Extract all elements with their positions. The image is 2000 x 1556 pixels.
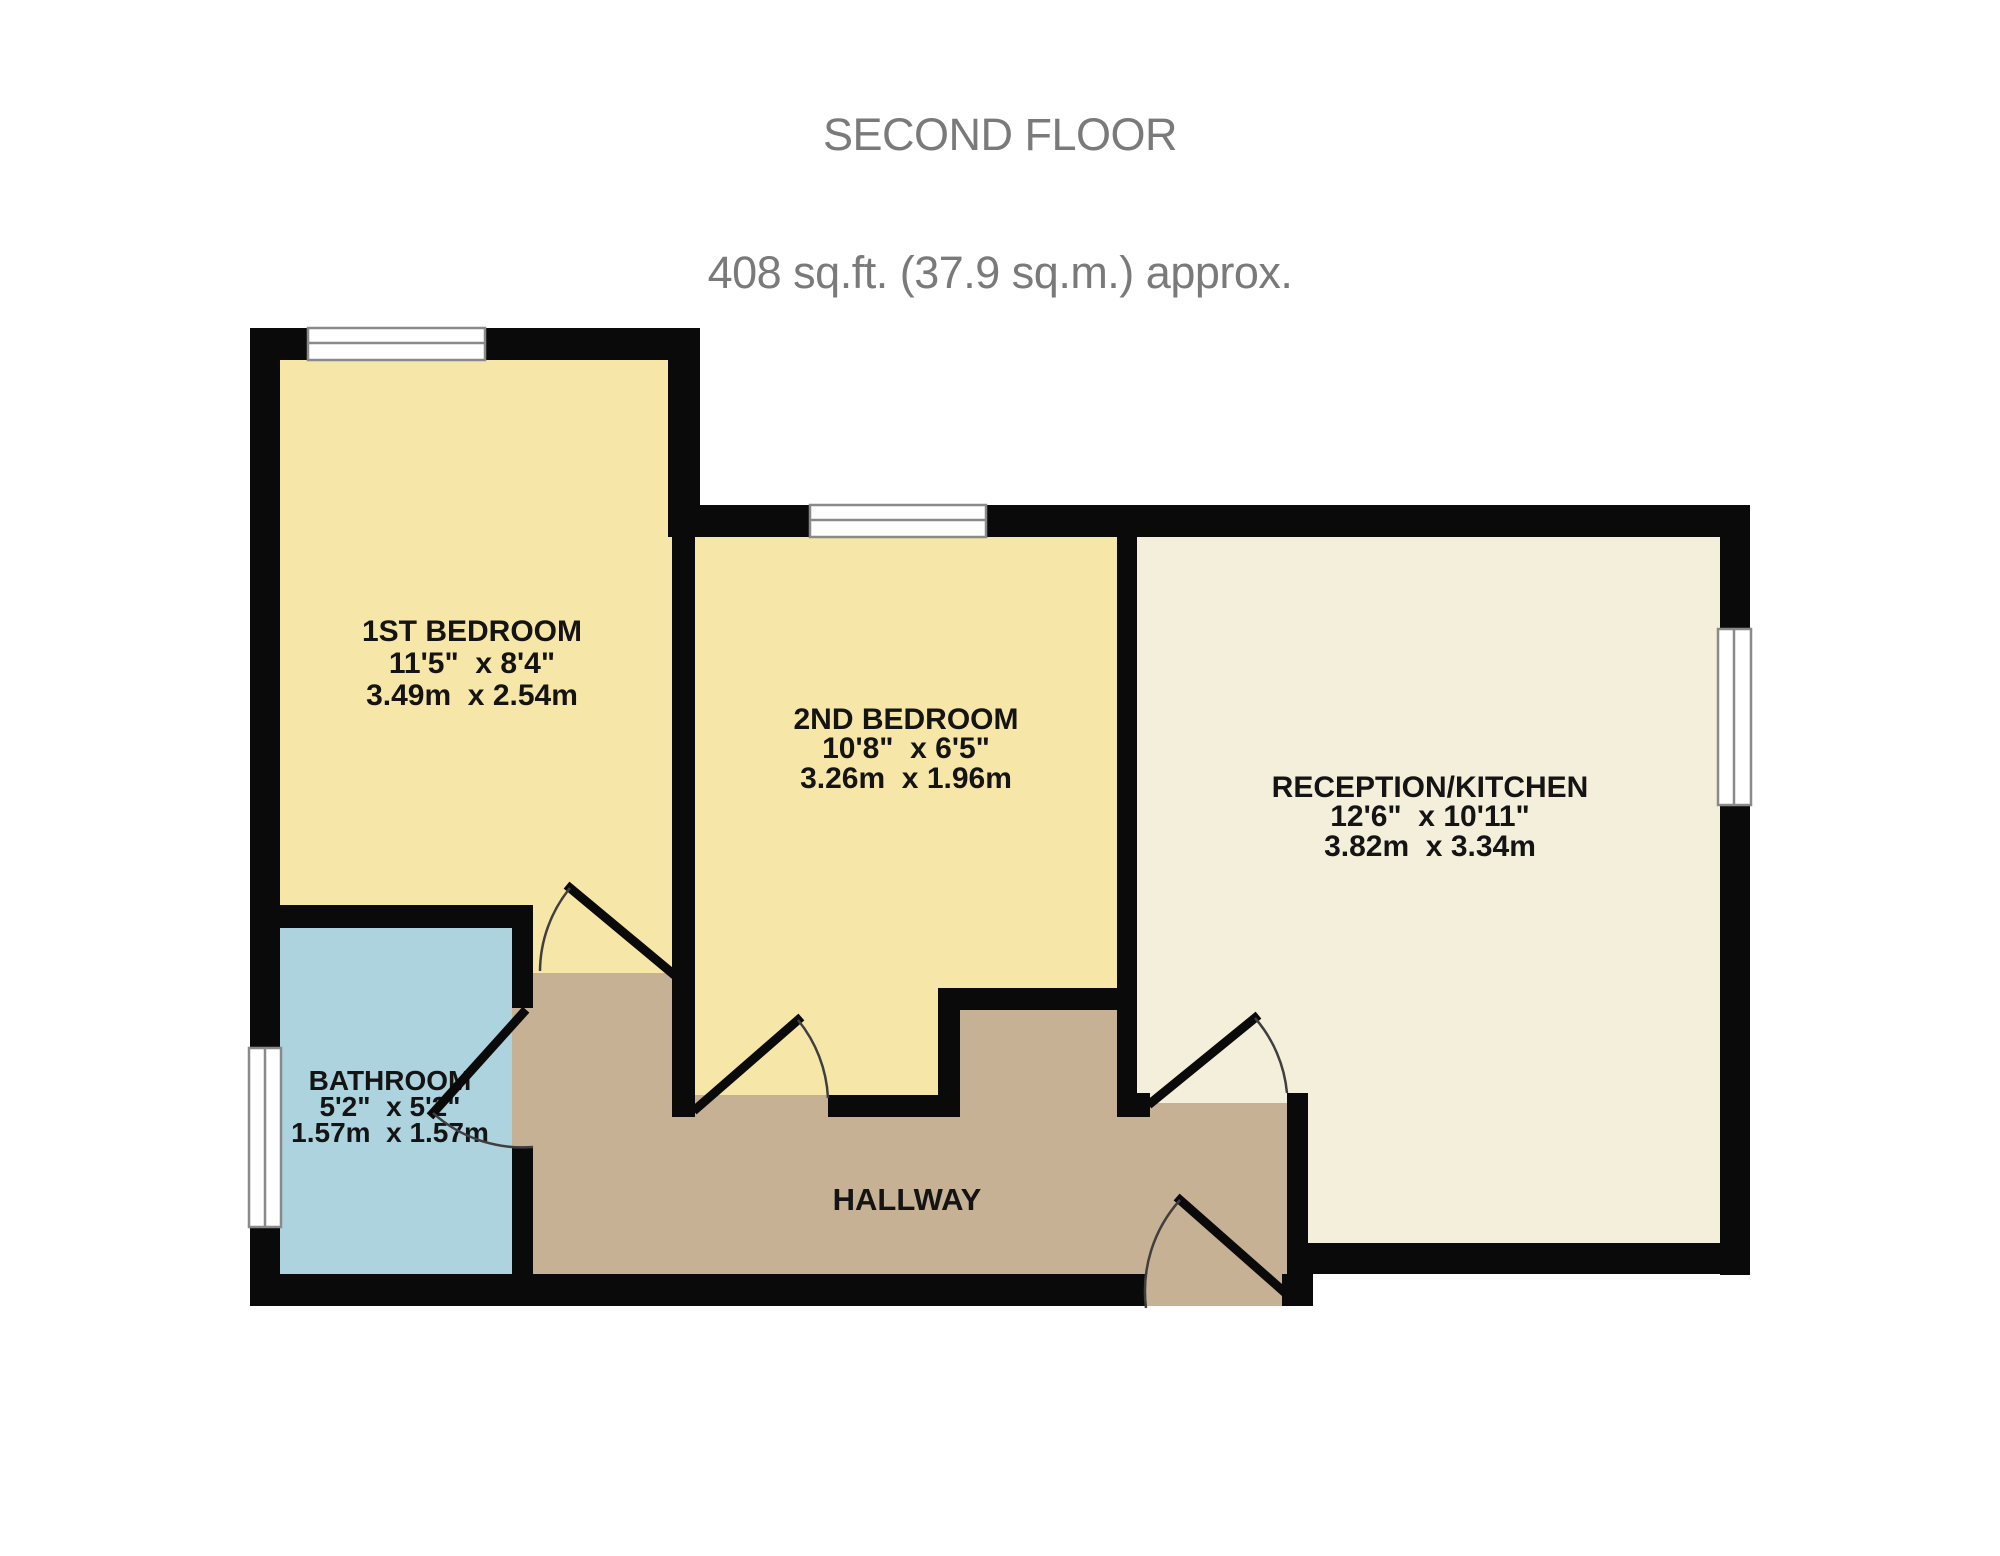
wall-reception-top: [1118, 505, 1750, 537]
wall-bathroom-right-lower: [512, 1147, 533, 1306]
wall-reception-bottom: [1308, 1243, 1750, 1274]
wall-bedroom1-bedroom2-divider: [672, 537, 695, 1117]
reception-size-metric: 3.82m x 3.34m: [1324, 830, 1536, 863]
hallway-floor-notch: [938, 1010, 1117, 1117]
bedroom2-size-imperial: 10'8" x 6'5": [822, 732, 990, 765]
hallway-label: HALLWAY: [833, 1182, 982, 1217]
hallway-name: HALLWAY: [833, 1182, 982, 1217]
reception-size-imperial: 12'6" x 10'11": [1330, 800, 1530, 833]
window-bedroom1: [308, 328, 485, 360]
bedroom1-name: 1ST BEDROOM: [362, 615, 582, 648]
wall-bedroom2-bottom-right: [938, 988, 1135, 1010]
window-bathroom: [249, 1048, 281, 1227]
floorplan-page: SECOND FLOOR 408 sq.ft. (37.9 sq.m.) app…: [0, 0, 2000, 1556]
wall-bedroom2-reception-divider: [1117, 505, 1137, 1117]
floorplan-svg: 1ST BEDROOM 11'5" x 8'4" 3.49m x 2.54m 2…: [0, 0, 2000, 1556]
bedroom1-size-imperial: 11'5" x 8'4": [389, 647, 555, 680]
hallway-floor-left-column: [533, 973, 695, 1306]
wall-bathroom-top: [250, 905, 533, 928]
wall-hallway-reception-divider: [1287, 1093, 1308, 1243]
bedroom2-size-metric: 3.26m x 1.96m: [800, 762, 1012, 795]
wall-exterior-right: [1720, 505, 1750, 1275]
bedroom2-label: 2ND BEDROOM 10'8" x 6'5" 3.26m x 1.96m: [793, 703, 1018, 795]
wall-bathroom-right-upper: [512, 905, 533, 1008]
hallway-floor-bath-doorway: [512, 1008, 533, 1147]
window-reception: [1718, 629, 1751, 805]
window-bedroom2: [810, 505, 986, 537]
wall-hallway-bottom: [250, 1274, 1146, 1306]
wall-bedroom2-reception-stub: [1117, 1093, 1150, 1117]
bedroom1-size-metric: 3.49m x 2.54m: [366, 679, 578, 712]
bedroom1-label: 1ST BEDROOM 11'5" x 8'4" 3.49m x 2.54m: [362, 615, 582, 712]
